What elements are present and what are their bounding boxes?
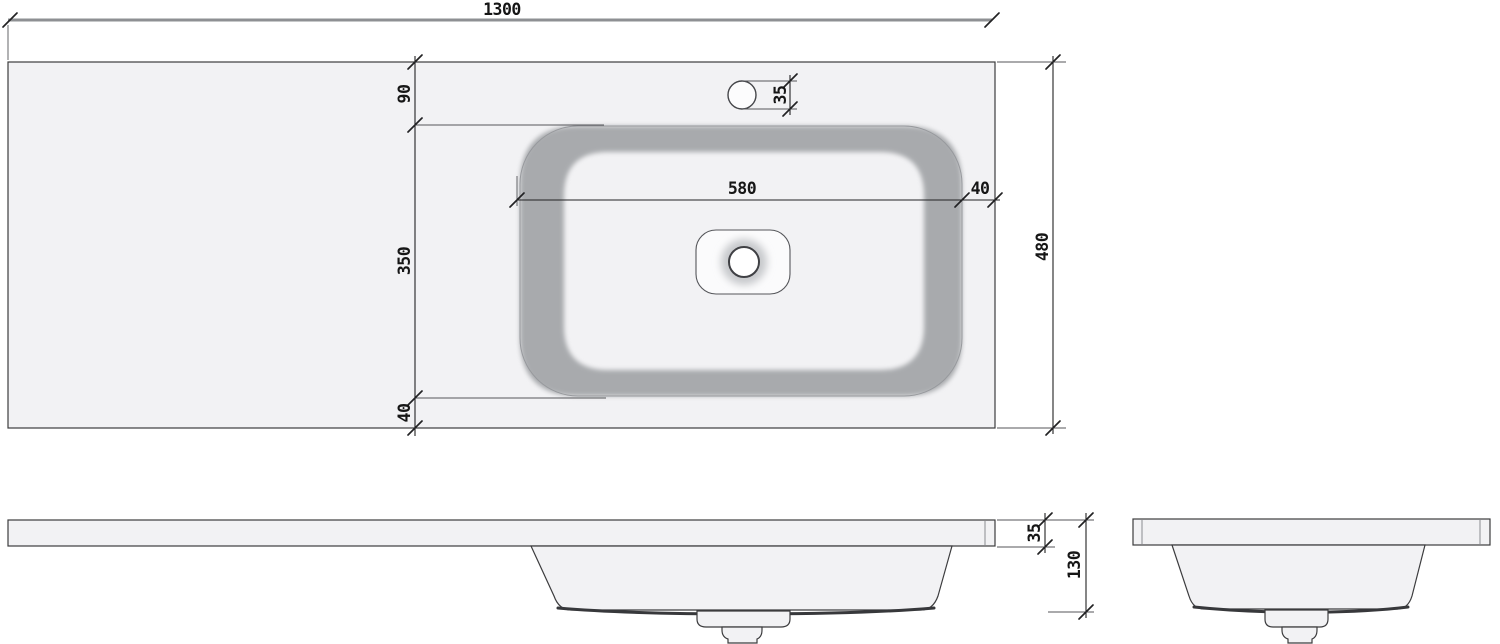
drain bbox=[696, 230, 790, 294]
side-drain-flange bbox=[1265, 610, 1328, 627]
dim-label-overall-depth: 480 bbox=[1033, 233, 1052, 261]
dim-label-faucet-hole: 35 bbox=[771, 86, 790, 105]
dim-label-overall-width: 1300 bbox=[483, 0, 521, 19]
dim-label-overall-height: 130 bbox=[1065, 551, 1084, 579]
dim-label-basin-depth: 350 bbox=[395, 247, 414, 275]
dim-label-basin-side-gap: 40 bbox=[971, 179, 990, 198]
top-view bbox=[8, 62, 995, 428]
drain-hole bbox=[729, 247, 759, 277]
side-bowl bbox=[1172, 545, 1425, 609]
dim-label-slab-thickness: 35 bbox=[1025, 524, 1044, 543]
dim-label-back-offset: 90 bbox=[395, 85, 414, 104]
dim-label-basin-width: 580 bbox=[728, 179, 756, 198]
washbasin-technical-drawing: 1300 90 350 40 480 580 40 35 bbox=[0, 0, 1500, 644]
front-slab bbox=[8, 520, 995, 546]
dim-label-front-offset: 40 bbox=[395, 404, 414, 423]
technical-drawing-page: 1300 90 350 40 480 580 40 35 bbox=[0, 0, 1500, 644]
front-drain-neck bbox=[722, 627, 762, 643]
faucet-hole bbox=[728, 81, 756, 109]
side-slab bbox=[1133, 519, 1490, 545]
front-bowl bbox=[531, 546, 952, 610]
front-drain-flange bbox=[697, 611, 790, 627]
